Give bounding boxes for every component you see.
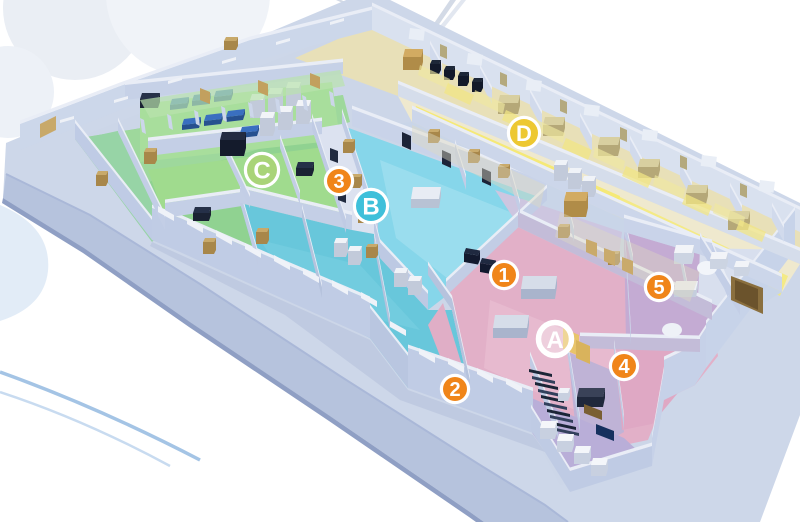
svg-text:C: C [253,158,270,185]
svg-text:A: A [546,327,563,354]
svg-text:4: 4 [618,356,630,378]
svg-text:2: 2 [449,379,460,401]
svg-text:D: D [516,121,532,146]
svg-text:1: 1 [498,265,509,287]
svg-text:B: B [362,194,379,221]
svg-text:3: 3 [333,171,344,193]
svg-text:5: 5 [653,277,664,299]
